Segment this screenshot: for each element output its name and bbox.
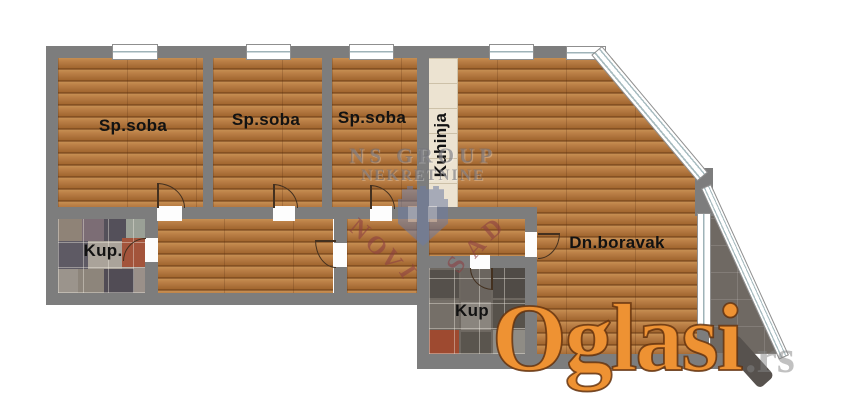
wall-bottom-left bbox=[46, 293, 429, 305]
emblem-tower bbox=[408, 206, 417, 222]
wall-left bbox=[46, 46, 58, 305]
site-watermark-tld: .rs bbox=[745, 330, 795, 383]
door-bedroom-2 bbox=[273, 206, 295, 221]
label-bedroom-2: Sp.soba bbox=[232, 110, 300, 130]
watermark-agency-line1: NS GROUP bbox=[349, 144, 497, 169]
floor-bedroom-2 bbox=[213, 58, 322, 207]
watermark-agency-line2: NEKRETNINE bbox=[361, 167, 485, 185]
door-bathroom-1 bbox=[145, 238, 158, 262]
emblem-shield bbox=[398, 199, 448, 246]
window-bedroom-3 bbox=[349, 44, 394, 60]
wall-entry-bathroom2-right bbox=[490, 256, 525, 268]
label-bathroom-2: Kup bbox=[455, 301, 489, 321]
label-bedroom-3: Sp.soba bbox=[338, 108, 406, 128]
window-bedroom-1 bbox=[112, 44, 158, 60]
door-bedroom-1 bbox=[157, 206, 182, 221]
label-bedroom-1: Sp.soba bbox=[99, 116, 167, 136]
label-living-room: Dn.boravak bbox=[569, 233, 665, 253]
emblem-crown bbox=[402, 186, 444, 199]
wall-bedroom2-bedroom3 bbox=[322, 58, 332, 207]
door-living-room bbox=[525, 232, 537, 257]
wall-bedroom1-bedroom2 bbox=[203, 58, 213, 207]
window-bedroom-2 bbox=[246, 44, 291, 60]
floor-hallway-1 bbox=[155, 219, 333, 293]
novi-sad-coat-of-arms bbox=[398, 186, 448, 246]
emblem-tower bbox=[428, 206, 437, 222]
label-bathroom-1: Kup. bbox=[84, 241, 123, 261]
window-living-room-1 bbox=[489, 44, 534, 60]
site-watermark: Oglasi bbox=[492, 282, 741, 393]
floor-plan: Sp.soba Sp.soba Sp.soba Kuhinja Kup. Dn.… bbox=[0, 0, 848, 420]
